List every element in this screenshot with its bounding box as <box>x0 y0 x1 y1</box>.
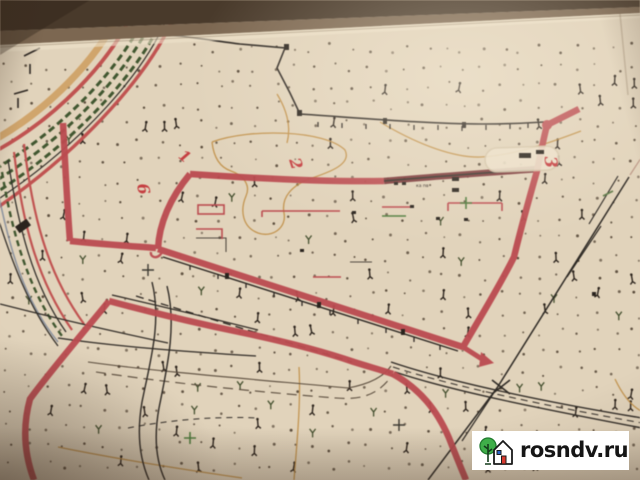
vegetation-dot <box>250 255 253 258</box>
vegetation-dot <box>83 426 85 428</box>
vegetation-dot <box>615 142 618 145</box>
vegetation-dot <box>314 100 317 103</box>
vegetation-dot <box>384 411 386 413</box>
vegetation-dot <box>448 81 450 83</box>
vegetation-dot <box>427 430 430 433</box>
vegetation-dot <box>536 197 538 199</box>
vegetation-dot <box>391 51 394 54</box>
vegetation-dot <box>345 119 347 121</box>
vegetation-dot <box>103 409 106 412</box>
vegetation-dot <box>254 195 256 197</box>
vegetation-dot <box>159 65 162 68</box>
vegetation-dot <box>277 255 279 257</box>
vegetation-dot <box>573 156 575 158</box>
vegetation-dot <box>180 462 183 465</box>
vegetation-dot <box>522 331 524 333</box>
vegetation-dot <box>633 139 635 141</box>
vegetation-dot <box>350 138 352 140</box>
vegetation-dot <box>289 308 291 310</box>
vegetation-dot <box>440 66 442 68</box>
photo-of-cadastral-map: ка пв 1 2 3 6 rosndv.ru <box>0 0 640 480</box>
vegetation-dot <box>311 445 314 448</box>
vegetation-dot <box>30 352 33 355</box>
vegetation-dot <box>561 405 563 407</box>
vegetation-dot <box>44 334 46 336</box>
vegetation-dot <box>251 46 253 48</box>
vegetation-dot <box>197 108 199 110</box>
vegetation-dot <box>594 370 597 373</box>
vegetation-dot <box>498 217 501 220</box>
vegetation-dot <box>306 354 308 356</box>
vegetation-dot <box>554 83 557 86</box>
vegetation-dot <box>560 64 562 66</box>
vegetation-dot <box>389 431 392 434</box>
vegetation-dot <box>596 197 599 200</box>
vegetation-dot <box>272 222 275 225</box>
vegetation-dot <box>9 411 11 413</box>
vegetation-dot <box>407 239 409 241</box>
vegetation-dot <box>331 425 333 427</box>
vegetation-dot <box>215 308 218 311</box>
vegetation-dot <box>387 271 389 273</box>
vegetation-dot <box>363 465 365 467</box>
vegetation-dot <box>290 195 292 197</box>
vegetation-dot <box>520 276 523 279</box>
vegetation-dot <box>349 295 351 297</box>
vegetation-dot <box>478 259 480 261</box>
map-drawing: ка пв 1 2 3 6 <box>0 0 640 480</box>
vegetation-dot <box>382 196 385 199</box>
vegetation-dot <box>45 69 47 71</box>
vegetation-dot <box>502 314 504 316</box>
vegetation-dot <box>87 347 89 349</box>
vegetation-dot <box>635 125 637 127</box>
vegetation-dot <box>97 347 100 350</box>
vegetation-dot <box>82 372 85 375</box>
vegetation-dot <box>273 328 275 330</box>
vegetation-dot <box>176 295 178 297</box>
vegetation-dot <box>179 441 182 444</box>
vegetation-dot <box>234 142 236 144</box>
vegetation-dot <box>78 203 80 205</box>
vegetation-dot <box>367 347 369 349</box>
vegetation-dot <box>561 178 563 180</box>
vegetation-dot <box>519 99 522 102</box>
vegetation-dot <box>220 392 223 395</box>
vegetation-dot <box>575 297 577 299</box>
vegetation-dot <box>425 448 427 450</box>
vegetation-dot <box>504 335 506 337</box>
vegetation-dot <box>164 240 166 242</box>
vegetation-dot <box>462 69 464 71</box>
vegetation-dot <box>499 139 501 141</box>
vegetation-dot <box>79 118 81 120</box>
vegetation-dot <box>65 424 67 426</box>
vegetation-dot <box>215 142 217 144</box>
vegetation-dot <box>345 403 347 405</box>
vegetation-dot <box>268 466 270 468</box>
vegetation-dot <box>126 121 129 124</box>
vegetation-dot <box>558 219 561 222</box>
vegetation-dot <box>42 295 45 298</box>
vegetation-dot <box>6 311 8 313</box>
vegetation-dot <box>371 332 373 334</box>
vegetation-dot <box>46 181 48 183</box>
vegetation-dot <box>327 450 330 453</box>
vegetation-dot <box>477 365 480 368</box>
vegetation-dot <box>613 46 615 48</box>
vegetation-dot <box>24 196 26 198</box>
vegetation-dot <box>370 200 372 202</box>
vegetation-dot <box>98 218 100 220</box>
vegetation-dot <box>135 348 137 350</box>
tiny-map-annotation: ка пв <box>416 184 429 189</box>
vegetation-dot <box>10 444 12 446</box>
vegetation-dot <box>539 235 541 237</box>
vegetation-dot <box>503 255 505 257</box>
vegetation-dot <box>308 213 311 216</box>
vegetation-dot <box>259 346 261 348</box>
vegetation-dot <box>158 157 160 159</box>
vegetation-dot <box>249 85 251 87</box>
vegetation-dot <box>463 296 465 298</box>
vegetation-dot <box>478 335 481 338</box>
vegetation-dot <box>268 313 270 315</box>
vegetation-dot <box>559 366 562 369</box>
vegetation-dot <box>610 373 613 376</box>
vegetation-dot <box>215 127 217 129</box>
vegetation-dot <box>631 216 633 218</box>
vegetation-dot <box>116 183 118 185</box>
vegetation-dot <box>637 176 640 179</box>
vegetation-dot <box>200 146 203 149</box>
vegetation-dot <box>312 199 315 202</box>
vegetation-dot <box>48 271 51 274</box>
vegetation-dot <box>234 463 236 465</box>
vegetation-dot <box>326 215 328 217</box>
vegetation-dot <box>422 256 424 258</box>
vegetation-dot <box>158 182 160 184</box>
vegetation-dot <box>427 87 429 89</box>
vegetation-dot <box>616 332 619 335</box>
vegetation-dot <box>81 278 84 281</box>
vegetation-dot <box>30 83 32 85</box>
vegetation-dot <box>230 122 233 125</box>
vegetation-dot <box>346 100 349 103</box>
vegetation-dot <box>538 278 541 281</box>
vegetation-dot <box>8 335 11 338</box>
vegetation-dot <box>580 367 583 370</box>
vegetation-dot <box>503 108 506 111</box>
vegetation-dot <box>123 161 125 163</box>
vegetation-dot <box>467 147 469 149</box>
vegetation-dot <box>2 63 4 65</box>
vegetation-dot <box>367 158 370 161</box>
vegetation-dot <box>140 195 142 197</box>
vegetation-dot <box>125 410 128 413</box>
vegetation-dot <box>354 256 356 258</box>
vegetation-dot <box>517 68 519 70</box>
vegetation-dot <box>219 424 221 426</box>
vegetation-dot <box>482 183 485 186</box>
vegetation-dot <box>540 64 542 66</box>
vegetation-dot <box>632 291 635 294</box>
vegetation-dot <box>559 52 562 55</box>
vegetation-dot <box>619 70 622 73</box>
vegetation-dot <box>407 101 409 103</box>
vegetation-dot <box>482 391 484 393</box>
vegetation-dot <box>555 273 557 275</box>
vegetation-dot <box>596 311 599 314</box>
vegetation-dot <box>346 277 348 279</box>
vegetation-dot <box>334 254 336 256</box>
vegetation-dot <box>79 176 81 178</box>
vegetation-dot <box>480 118 483 121</box>
vegetation-dot <box>468 220 470 222</box>
vegetation-dot <box>259 467 261 469</box>
vegetation-dot <box>422 289 425 292</box>
vegetation-dot <box>230 350 233 353</box>
vegetation-dot <box>579 118 581 120</box>
vegetation-dot <box>558 235 560 237</box>
vegetation-dot <box>269 385 271 387</box>
vegetation-dot <box>62 274 64 276</box>
vegetation-dot <box>278 100 280 102</box>
vegetation-dot <box>478 66 480 68</box>
vegetation-dot <box>249 391 251 393</box>
vegetation-dot <box>498 83 501 86</box>
vegetation-dot <box>68 384 71 387</box>
vegetation-dot <box>49 106 51 108</box>
vegetation-dot <box>234 216 236 218</box>
vegetation-dot <box>237 70 240 73</box>
vegetation-dot <box>593 240 596 243</box>
vegetation-dot <box>384 260 386 262</box>
vegetation-dot <box>234 432 236 434</box>
vegetation-dot <box>482 220 484 222</box>
vegetation-dot <box>558 424 560 426</box>
vegetation-dot <box>231 165 233 167</box>
vegetation-dot <box>458 274 461 277</box>
vegetation-dot <box>125 349 128 352</box>
vegetation-dot <box>311 251 313 253</box>
vegetation-dot <box>198 368 201 371</box>
vegetation-dot <box>182 107 184 109</box>
vegetation-dot <box>538 335 540 337</box>
vegetation-dot <box>519 293 521 295</box>
vegetation-dot <box>48 125 50 127</box>
vegetation-dot <box>270 276 273 279</box>
vegetation-dot <box>310 389 312 391</box>
vegetation-dot <box>406 372 408 374</box>
vegetation-dot <box>159 200 161 202</box>
vegetation-dot <box>406 45 408 47</box>
vegetation-dot <box>326 411 329 414</box>
vegetation-dot <box>193 43 195 45</box>
vegetation-dot <box>428 270 431 273</box>
vegetation-dot <box>542 375 544 377</box>
vegetation-dot <box>193 423 195 425</box>
vegetation-dot <box>4 119 6 121</box>
vegetation-dot <box>291 104 294 107</box>
vegetation-dot <box>275 236 277 238</box>
vegetation-dot <box>64 69 66 71</box>
vegetation-dot <box>48 88 51 91</box>
vegetation-dot <box>192 275 194 277</box>
vegetation-dot <box>258 297 260 299</box>
vegetation-dot <box>214 369 217 372</box>
vegetation-dot <box>9 107 12 110</box>
vegetation-dot <box>154 84 157 87</box>
vegetation-dot <box>327 163 330 166</box>
vegetation-dot <box>176 218 179 221</box>
vegetation-dot <box>141 330 143 332</box>
vegetation-dot <box>346 337 348 339</box>
vegetation-dot <box>3 391 5 393</box>
vegetation-dot <box>28 428 30 430</box>
vegetation-dot <box>313 313 316 316</box>
vegetation-dot <box>199 353 202 356</box>
vegetation-dot <box>618 348 620 350</box>
vegetation-dot <box>402 314 404 316</box>
vegetation-dot <box>347 369 349 371</box>
vegetation-dot <box>28 385 30 387</box>
vegetation-dot <box>593 63 595 65</box>
vegetation-dot <box>201 232 203 234</box>
vegetation-dot <box>425 138 428 141</box>
vegetation-dot <box>47 214 50 217</box>
vegetation-dot <box>126 66 128 68</box>
vegetation-dot <box>401 219 404 222</box>
vegetation-dot <box>104 184 106 186</box>
vegetation-dot <box>50 461 52 463</box>
vegetation-dot <box>350 87 353 90</box>
vegetation-dot <box>69 404 71 406</box>
vegetation-dot <box>136 466 138 468</box>
vegetation-dot <box>175 351 177 353</box>
vegetation-dot <box>256 107 258 109</box>
vegetation-dot <box>404 292 406 294</box>
vegetation-dot <box>11 296 14 299</box>
vegetation-dot <box>249 140 251 142</box>
vegetation-dot <box>288 239 290 241</box>
vegetation-dot <box>307 461 310 464</box>
vegetation-dot <box>155 410 157 412</box>
vegetation-dot <box>403 69 405 71</box>
vegetation-dot <box>162 141 165 144</box>
vegetation-dot <box>238 447 240 449</box>
vegetation-dot <box>479 293 482 296</box>
vegetation-dot <box>478 163 481 166</box>
vegetation-dot <box>10 81 12 83</box>
vegetation-dot <box>582 389 584 391</box>
vegetation-dot <box>369 51 372 54</box>
vegetation-dot <box>561 106 563 108</box>
vegetation-dot <box>409 279 411 281</box>
vegetation-dot <box>426 366 428 368</box>
vegetation-dot <box>158 278 160 280</box>
watermark: rosndv.ru <box>472 431 629 470</box>
watermark-logo <box>479 435 515 467</box>
vegetation-dot <box>80 405 82 407</box>
vegetation-dot <box>351 162 353 164</box>
vegetation-dot <box>288 369 290 371</box>
vegetation-dot <box>612 122 614 124</box>
vegetation-dot <box>484 279 486 281</box>
vegetation-dot <box>594 348 596 350</box>
vegetation-dot <box>7 461 9 463</box>
vegetation-dot <box>348 70 350 72</box>
vegetation-dot <box>316 368 318 370</box>
vegetation-dot <box>581 107 583 109</box>
vegetation-dot <box>385 289 388 292</box>
vegetation-dot <box>46 140 49 143</box>
vegetation-dot <box>579 199 581 201</box>
vegetation-dot <box>404 406 407 409</box>
vegetation-dot <box>610 236 612 238</box>
vegetation-dot <box>254 125 256 127</box>
vegetation-dot <box>101 238 103 240</box>
vegetation-dot <box>425 165 427 167</box>
vegetation-dot <box>137 255 139 257</box>
vegetation-dot <box>332 468 335 471</box>
vegetation-dot <box>5 423 7 425</box>
vegetation-dot <box>328 42 331 45</box>
vegetation-dot <box>157 333 159 335</box>
vegetation-dot <box>4 369 6 371</box>
vegetation-dot <box>157 354 160 357</box>
vegetation-dot <box>212 469 215 472</box>
vegetation-dot <box>629 160 632 163</box>
vegetation-dot <box>201 65 203 67</box>
vegetation-dot <box>344 240 347 243</box>
vegetation-dot <box>593 47 595 49</box>
vegetation-dot <box>422 198 424 200</box>
vegetation-dot <box>479 241 481 243</box>
vegetation-dot <box>389 234 392 237</box>
vegetation-dot <box>330 87 333 90</box>
vegetation-dot <box>136 85 139 88</box>
vegetation-dot <box>538 107 540 109</box>
vegetation-dot <box>79 465 81 467</box>
vegetation-dot <box>312 88 315 91</box>
vegetation-dot <box>632 444 635 447</box>
vegetation-dot <box>430 47 432 49</box>
vegetation-dot <box>348 460 351 463</box>
vegetation-dot <box>581 140 583 142</box>
vegetation-dot <box>440 431 442 433</box>
vegetation-dot <box>630 328 633 331</box>
vegetation-dot <box>368 142 370 144</box>
vegetation-dot <box>407 164 409 166</box>
vegetation-dot <box>443 194 445 196</box>
vegetation-dot <box>239 48 242 51</box>
vegetation-dot <box>463 448 466 451</box>
vegetation-dot <box>539 292 541 294</box>
vegetation-dot <box>572 177 574 179</box>
vegetation-dot <box>384 389 387 392</box>
vegetation-dot <box>101 446 103 448</box>
vegetation-dot <box>458 233 461 236</box>
vegetation-dot <box>498 238 500 240</box>
vegetation-dot <box>391 447 393 449</box>
vegetation-dot <box>448 143 450 145</box>
vegetation-dot <box>464 392 466 394</box>
vegetation-dot <box>67 102 69 104</box>
vegetation-dot <box>63 467 66 470</box>
vegetation-dot <box>351 348 354 351</box>
vegetation-dot <box>119 201 121 203</box>
